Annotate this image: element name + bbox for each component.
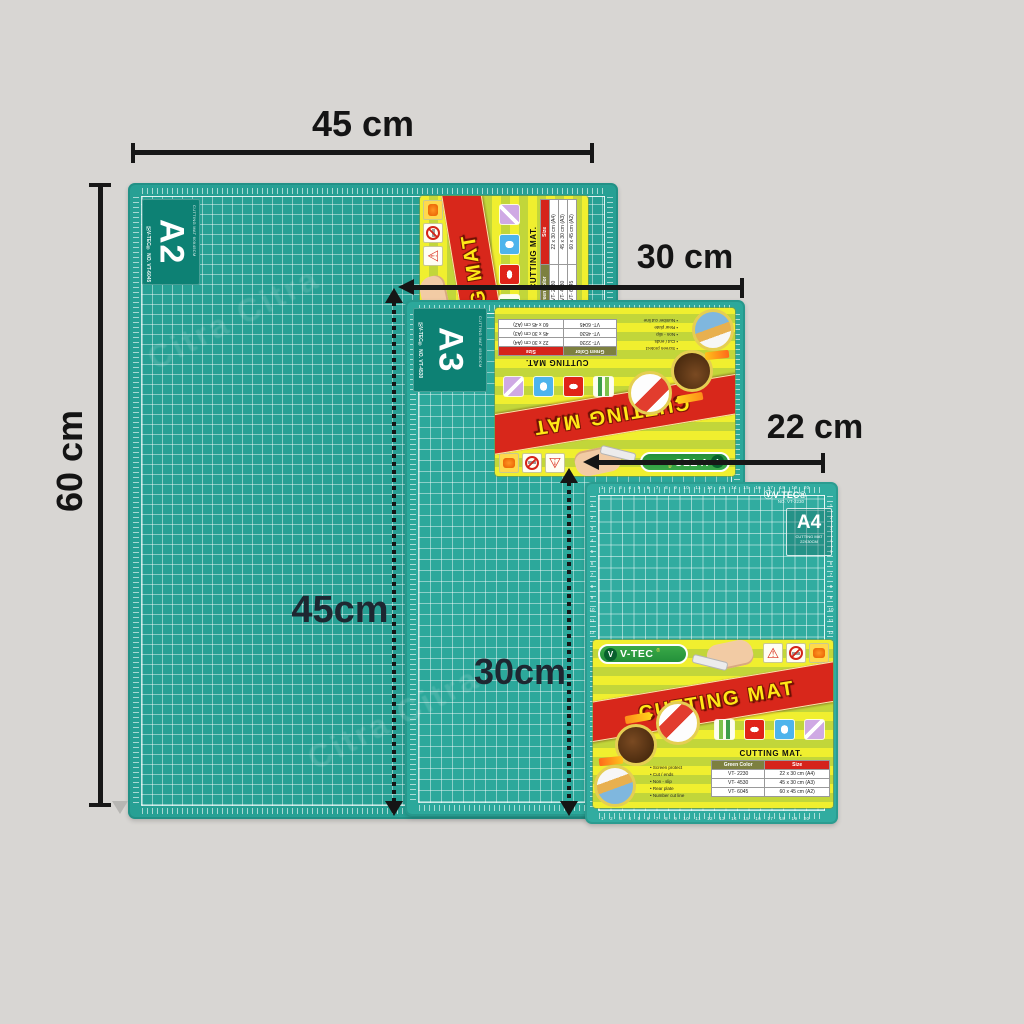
model-cell: VT- 2230 (563, 338, 616, 347)
table-row: VT- 223022 x 30 cm (A4) (499, 338, 617, 347)
mouse-icon (534, 377, 553, 396)
feature-item: Non - slip (650, 779, 714, 786)
arrowhead-down (385, 801, 403, 816)
size-cell: 45 x 30 cm (A3) (765, 779, 830, 788)
dim-a4-height-label: 30cm (420, 651, 620, 693)
warning-icons-row: ⚠ (763, 643, 829, 663)
mat-a3-brand-text: ⓋV-TEC® NO. VT-4530 (417, 322, 424, 378)
bottles-icon (594, 377, 613, 396)
usage-icons-row (504, 377, 613, 396)
model-cell: VT- 4530 (563, 329, 616, 338)
mat-a4-product-label: V V-TEC ® ⚠ CUTTING MAT Screen protect C… (593, 640, 833, 808)
dim-a2-width-label: 45 cm (133, 103, 593, 145)
warning-icons-row: ⚠ (423, 200, 443, 266)
dim-a2-height-label: 60 cm (49, 381, 91, 541)
caution-icon (809, 643, 829, 663)
mat-a2-grade-label: A2 (152, 219, 191, 264)
mat-a4-ruler-numbers-left: 1 2 3 4 5 6 7 8 9 10 11 12 (588, 500, 596, 640)
vtec-brand-text: V-TEC (620, 648, 653, 660)
model-cell: VT- 6045 (563, 320, 616, 329)
size-cell: 22 x 30 cm (A4) (499, 338, 564, 347)
orange-blob-shape (503, 458, 515, 468)
photo-circle-red (656, 701, 700, 745)
size-cell: 45 x 30 cm (A3) (499, 329, 564, 338)
photo-circle-color (692, 309, 734, 351)
feature-item: Number cut line (650, 793, 714, 800)
cutting-mat-a4: 1 2 3 4 5 6 7 8 9 10 11 12 13 14 15 16 1… (585, 482, 838, 824)
size-table-col1: Green Color (563, 347, 616, 356)
warning-triangle-icon: ⚠ (423, 246, 443, 266)
size-cell: 22 x 30 cm (A4) (550, 200, 559, 265)
warning-icons-row: ⚠ (499, 453, 565, 473)
eye-icon (564, 377, 583, 396)
size-cell: 60 x 45 cm (A2) (765, 788, 830, 797)
size-table-col2: Size (541, 200, 550, 265)
usage-icons-row (500, 205, 519, 314)
dim-a2-height-line (98, 185, 103, 805)
mat-a3-grade-sub: CUTTING MAT 45X30CM (478, 316, 483, 368)
bottles-icon (715, 720, 734, 739)
dim-tick (740, 278, 744, 298)
warning-triangle-icon: ⚠ (763, 643, 783, 663)
feature-item: Rear plate (650, 786, 714, 793)
warning-glyph: ⚠ (767, 646, 780, 660)
dim-tick (89, 803, 111, 807)
size-cell: 60 x 45 cm (A2) (499, 320, 564, 329)
size-table-title: CUTTING MAT. (711, 749, 831, 758)
orange-blob-shape (813, 648, 825, 658)
eye-icon (745, 720, 764, 739)
size-table-title: CUTTING MAT. (497, 358, 617, 367)
mat-a2-ruler-ticks-left (133, 197, 139, 805)
hand-shape (705, 640, 755, 672)
blade-icon (504, 377, 523, 396)
feature-item: Cut / ends (614, 337, 678, 344)
table-row: VT- 453045 x 30 cm (A3) (712, 779, 830, 788)
size-table-col2: Size (499, 347, 564, 356)
mouse-icon (500, 235, 519, 254)
size-table-col1: Green Color (712, 761, 765, 770)
no-slash-shape (789, 646, 803, 660)
photo-circle-color (594, 765, 636, 807)
mat-a2-grade-box: ⓋV-TEC® NO. VT-6045 A2 CUTTING MAT 60X45… (142, 199, 200, 285)
mat-a4-grade-sub2: 22X30CM (787, 539, 831, 544)
no-cutter-icon (786, 643, 806, 663)
mat-a2-grade-sub: CUTTING MAT 60X45CM (192, 205, 197, 257)
warning-glyph: ⚠ (426, 250, 440, 263)
feature-item: Rear plate (614, 323, 678, 330)
gray-triangle-mark (112, 801, 128, 814)
usage-icons-row (715, 720, 824, 739)
caution-icon (499, 453, 519, 473)
model-cell: VT- 2230 (712, 770, 765, 779)
arrowhead-left (583, 454, 599, 470)
no-slash-shape (426, 226, 440, 240)
size-cell: 22 x 30 cm (A4) (765, 770, 830, 779)
dim-tick (89, 183, 111, 187)
wordart-decoration (705, 350, 730, 360)
mat-a3-grade-label: A3 (431, 327, 470, 372)
mat-a3-grade-box: ⓋV-TEC® NO. VT-4530 A3 CUTTING MAT 45X30… (413, 308, 487, 392)
blade-icon (500, 205, 519, 224)
dim-a4-height-dotted-line (567, 482, 571, 802)
mat-a4-model-text: NO. VT-2230 (778, 499, 804, 504)
table-row: VT- 604560 x 45 cm (A2) (712, 788, 830, 797)
arrowhead-up (385, 288, 403, 303)
no-slash-shape (525, 456, 539, 470)
feature-item: Screen protect (614, 344, 678, 351)
dim-a3-height-dotted-line (392, 302, 396, 802)
orange-blob-shape (428, 204, 438, 216)
model-cell: VT- 4530 (712, 779, 765, 788)
registered-mark: ® (656, 648, 660, 654)
dim-a3-height-label: 45cm (250, 589, 430, 632)
size-table: Green Color Size VT- 223022 x 30 cm (A4)… (711, 760, 830, 797)
size-table-col2: Size (765, 761, 830, 770)
size-table: Green Color Size VT- 223022 x 30 cm (A4)… (498, 319, 617, 356)
table-row: VT- 223022 x 30 cm (A4) (712, 770, 830, 779)
mat-a3-product-label: V V-TEC ® ⚠ CUTTING MAT Screen protect C… (495, 308, 735, 476)
mouse-icon (775, 720, 794, 739)
feature-item: Number cut line (614, 316, 678, 323)
dim-a3-width-line (408, 285, 742, 290)
mat-a4-grade-label: A4 (787, 512, 831, 534)
table-row: VT- 604560 x 45 cm (A2) (499, 320, 617, 329)
model-cell: VT- 6045 (712, 788, 765, 797)
blade-icon (805, 720, 824, 739)
feature-item: Cut / ends (650, 772, 714, 779)
dim-tick (821, 453, 825, 473)
feature-item: Screen protect (650, 765, 714, 772)
mat-a2-brand-text: ⓋV-TEC® NO. VT-6045 (145, 226, 152, 282)
mat-a4-ruler-numbers-bottom: 1 2 3 4 5 6 7 8 9 10 11 12 13 14 15 16 1… (601, 816, 825, 821)
hand-cutter-illustration (693, 641, 755, 679)
dim-a3-width-label: 30 cm (560, 238, 810, 277)
arrowhead-down (560, 801, 578, 816)
dim-a2-width-line (133, 150, 593, 155)
no-cutter-icon (522, 453, 542, 473)
dim-tick (590, 143, 594, 163)
dim-tick (131, 143, 135, 163)
arrowhead-up (560, 468, 578, 483)
photo-circle-red (628, 371, 672, 415)
feature-list: Screen protect Cut / ends Non - slip Rea… (614, 316, 678, 351)
mat-a2-ruler-ticks-top (142, 188, 604, 194)
feature-list: Screen protect Cut / ends Non - slip Rea… (650, 765, 714, 800)
eye-icon (500, 265, 519, 284)
feature-item: Non - slip (614, 330, 678, 337)
mat-a4-grade-box: A4 CUTTING MAT 22X30CM (786, 508, 832, 556)
no-cutter-icon (423, 223, 443, 243)
caution-icon (423, 200, 443, 220)
table-row: VT- 453045 x 30 cm (A3) (499, 329, 617, 338)
dim-a4-width-line (591, 460, 825, 465)
dim-a4-width-label: 22 cm (690, 408, 940, 447)
